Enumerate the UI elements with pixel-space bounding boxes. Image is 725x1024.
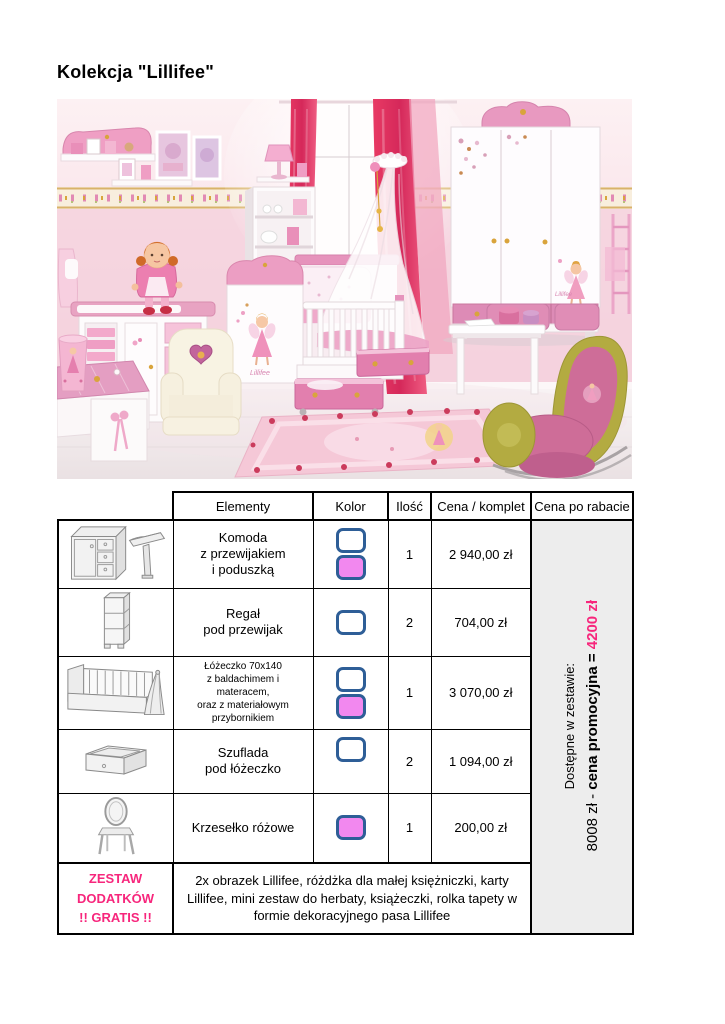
col-header-elementy: Elementy xyxy=(173,492,313,520)
gratis-label: ZESTAW DODATKÓW !! GRATIS !! xyxy=(58,863,173,934)
rebate-note-line2: 8008 zł - cena promocyjna = 4200 zł xyxy=(581,600,605,851)
rug xyxy=(235,408,525,477)
color-swatch-white xyxy=(336,737,366,762)
header-blank-cell xyxy=(58,492,173,520)
quantity: 2 xyxy=(388,729,431,793)
quantity: 1 xyxy=(388,793,431,863)
svg-text:Lillifee: Lillifee xyxy=(555,292,573,298)
crib-drawer-upper xyxy=(357,348,429,377)
color-swatch-pink xyxy=(336,694,366,719)
room-photo: Lillifee xyxy=(57,99,632,479)
quantity: 2 xyxy=(388,588,431,656)
element-name: Szuflada pod łóżeczko xyxy=(173,729,313,793)
komoda-icon xyxy=(58,520,173,588)
wall-pictures xyxy=(157,132,220,179)
table-header-row: Elementy Kolor Ilość Cena / komplet Cena… xyxy=(58,492,633,520)
element-name: Komoda z przewijakiem i poduszką xyxy=(173,520,313,588)
color-swatch-white xyxy=(336,610,366,635)
element-name: Regał pod przewijak xyxy=(173,588,313,656)
color-swatch-pink xyxy=(336,555,366,580)
price: 1 094,00 zł xyxy=(431,729,531,793)
rebate-note-line1: Dostępne w zestawie: xyxy=(559,600,581,851)
element-name: Łóżeczko 70x140 z baldachimem i materace… xyxy=(173,656,313,729)
child-armchair xyxy=(161,329,241,435)
color-swatches xyxy=(313,656,388,729)
catalog-page: Kolekcja "Lillifee" xyxy=(0,0,725,935)
wall-shelf xyxy=(61,128,155,161)
lozeczko-icon xyxy=(58,656,173,729)
col-header-kolor: Kolor xyxy=(313,492,388,520)
krzeselko-icon xyxy=(58,793,173,863)
rebate-note: Dostępne w zestawie: 8008 zł - cena prom… xyxy=(559,600,605,851)
price: 200,00 zł xyxy=(431,793,531,863)
svg-text:Lillifee: Lillifee xyxy=(250,370,270,377)
regal-icon xyxy=(58,588,173,656)
col-header-cena-po-rabacie: Cena po rabacie xyxy=(531,492,633,520)
price-table: Elementy Kolor Ilość Cena / komplet Cena… xyxy=(57,491,634,935)
price: 704,00 zł xyxy=(431,588,531,656)
color-swatches xyxy=(313,588,388,656)
waste-bin xyxy=(59,335,87,391)
table-row-komoda: Komoda z przewijakiem i poduszką 1 2 940… xyxy=(58,520,633,588)
color-swatch-white xyxy=(336,667,366,692)
price: 2 940,00 zł xyxy=(431,520,531,588)
color-swatch-pink xyxy=(336,815,366,840)
page-title: Kolekcja "Lillifee" xyxy=(57,62,725,83)
color-swatches xyxy=(313,729,388,793)
szuflada-icon xyxy=(58,729,173,793)
room-photo-illustration: Lillifee xyxy=(57,99,632,479)
col-header-cena-komplet: Cena / komplet xyxy=(431,492,531,520)
price: 3 070,00 zł xyxy=(431,656,531,729)
color-swatches xyxy=(313,793,388,863)
col-header-ilosc: Ilość xyxy=(388,492,431,520)
quantity: 1 xyxy=(388,520,431,588)
gratis-description: 2x obrazek Lillifee, różdżka dla małej k… xyxy=(173,863,531,934)
promo-price: 4200 zł xyxy=(584,600,601,649)
element-name: Krzesełko różowe xyxy=(173,793,313,863)
color-swatches xyxy=(313,520,388,588)
rebate-cell: Dostępne w zestawie: 8008 zł - cena prom… xyxy=(531,520,633,934)
color-swatch-white xyxy=(336,528,366,553)
quantity: 1 xyxy=(388,656,431,729)
